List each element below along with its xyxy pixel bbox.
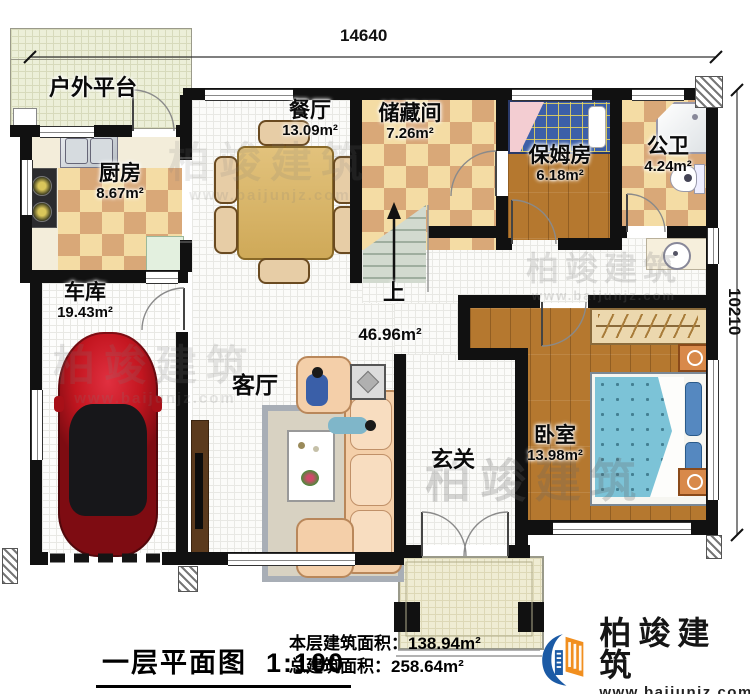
wall bbox=[180, 95, 192, 160]
room-label-dining: 餐厅 13.09m² bbox=[255, 100, 365, 139]
lamp-table bbox=[350, 364, 386, 400]
dining-chair bbox=[258, 258, 310, 284]
wall bbox=[458, 295, 540, 308]
hatch-pad bbox=[2, 548, 18, 584]
wall bbox=[610, 226, 627, 238]
vanity bbox=[646, 238, 708, 270]
room-label-storage: 储藏间 7.26m² bbox=[355, 103, 465, 142]
floor-area-row: 本层建筑面积：138.94m² bbox=[289, 633, 481, 656]
person-lying bbox=[328, 417, 368, 434]
dining-table bbox=[237, 146, 334, 260]
room-label-kitchen: 厨房 8.67m² bbox=[70, 163, 170, 202]
stairs-up-label: 上 bbox=[376, 281, 412, 305]
wall bbox=[176, 332, 188, 565]
wardrobe bbox=[590, 308, 710, 345]
wall bbox=[394, 354, 406, 558]
window bbox=[31, 390, 43, 460]
wall bbox=[558, 238, 622, 250]
brand-logo: 柏竣建筑 www.baijunjz.com bbox=[538, 617, 750, 694]
window bbox=[228, 553, 355, 566]
total-area-row: 总建筑面积：258.64m² bbox=[289, 656, 481, 679]
wall bbox=[180, 240, 192, 272]
hatch-pad bbox=[178, 566, 198, 592]
brand-text: 柏竣建筑 www.baijunjz.com bbox=[599, 617, 750, 694]
window bbox=[707, 228, 719, 264]
room-area-living: 46.96m² bbox=[340, 326, 440, 344]
window bbox=[512, 89, 592, 101]
area-summary: 本层建筑面积：138.94m² 总建筑面积：258.64m² bbox=[289, 633, 481, 679]
room-label-garage: 车库 19.43m² bbox=[25, 282, 145, 321]
room-label-nanny: 保姆房 6.18m² bbox=[505, 145, 615, 184]
dimension-right-label: 10210 bbox=[724, 288, 744, 335]
tv-cabinet bbox=[191, 420, 209, 562]
window bbox=[146, 271, 178, 284]
room-label-living: 客厅 bbox=[210, 373, 300, 398]
wall bbox=[496, 95, 508, 151]
porch-column bbox=[394, 602, 420, 632]
window bbox=[21, 160, 33, 215]
refrigerator bbox=[146, 236, 184, 272]
wall bbox=[428, 226, 508, 238]
floor-area-value: 138.94m² bbox=[408, 634, 481, 653]
room-label-bedroom: 卧室 13.98m² bbox=[500, 425, 610, 464]
window bbox=[707, 360, 719, 500]
hatch-pad bbox=[695, 76, 723, 108]
wall bbox=[496, 196, 508, 228]
platform-step bbox=[13, 108, 37, 126]
brand-website: www.baijunjz.com bbox=[599, 684, 750, 694]
window bbox=[553, 522, 691, 535]
room-label-foyer: 玄关 bbox=[408, 448, 498, 472]
room-label-platform: 户外平台 bbox=[28, 76, 158, 100]
platform-divider-line bbox=[10, 59, 190, 60]
wall bbox=[30, 552, 48, 565]
car bbox=[58, 332, 158, 557]
coffee-table bbox=[287, 430, 335, 502]
person-sitting bbox=[306, 374, 328, 406]
dimension-top-label: 14640 bbox=[340, 26, 387, 46]
room-label-bath: 公卫 4.24m² bbox=[622, 136, 714, 175]
window bbox=[632, 89, 684, 101]
armchair bbox=[296, 518, 354, 578]
brand-logo-icon bbox=[538, 629, 591, 689]
total-area-value: 258.64m² bbox=[391, 657, 464, 676]
wall bbox=[94, 125, 132, 137]
wall bbox=[508, 545, 530, 558]
wall bbox=[496, 238, 512, 250]
wall bbox=[458, 295, 470, 360]
dining-chair bbox=[214, 206, 238, 254]
wall bbox=[588, 295, 718, 308]
window bbox=[40, 126, 94, 138]
brand-name: 柏竣建筑 bbox=[599, 617, 750, 681]
floor-plan: 14640 10210 户外平台 厨房 8.67m² 餐厅 13.09m² 储藏… bbox=[0, 0, 750, 694]
dining-chair bbox=[214, 156, 238, 204]
hatch-pad bbox=[706, 535, 722, 559]
